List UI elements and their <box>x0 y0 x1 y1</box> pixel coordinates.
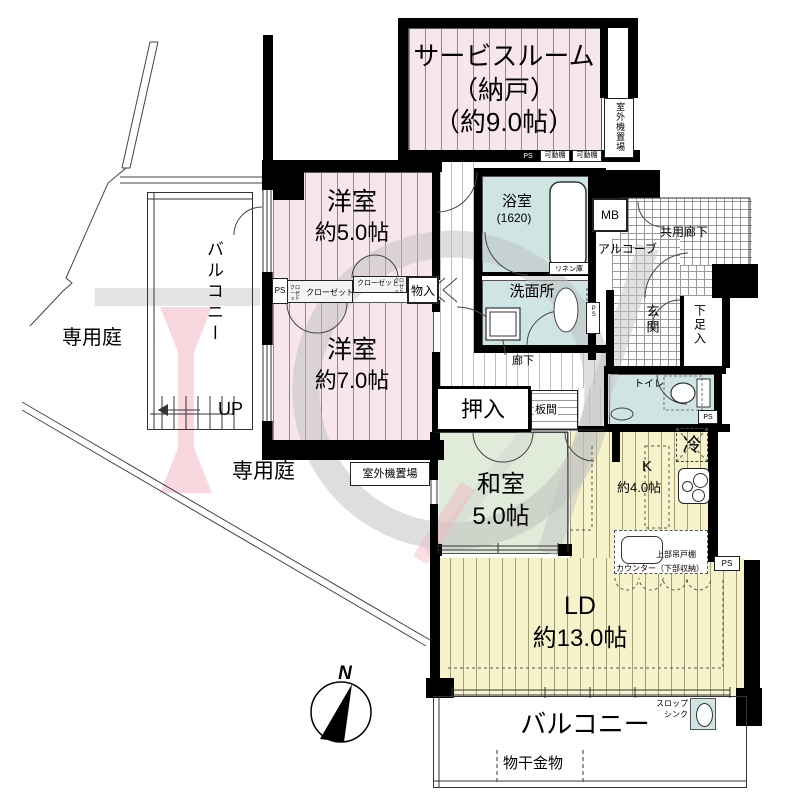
storage-box: 物入 <box>407 276 439 304</box>
pipe-space-box-west: PS <box>272 278 288 304</box>
western-room-5-name: 洋室 <box>292 188 412 216</box>
pipe-space-label: PS <box>699 414 717 422</box>
western-room-7-name: 洋室 <box>292 336 412 364</box>
alcove-entrance-floor <box>612 238 680 368</box>
linen-cabinet-box: リネン庫 <box>549 262 589 275</box>
movable-shelf-box-1: 可動棚 <box>540 150 570 162</box>
western-room-7-size: 約7.0帖 <box>287 369 417 394</box>
refrigerator-box: 冷 <box>676 428 708 462</box>
alcove-name: アルコーブ <box>598 243 657 256</box>
futon-closet-label: 押入 <box>438 398 528 423</box>
shoe-cabinet-name: 下足入 <box>692 304 705 346</box>
wall-segment <box>430 552 440 688</box>
pipe-space-label: PS <box>715 560 739 569</box>
board-floor-box: 板間 <box>531 390 578 430</box>
service-room-alt: （納戸） <box>399 76 609 105</box>
wall-segment <box>628 18 638 98</box>
pipe-space-box-bath: PS <box>586 302 600 334</box>
outdoor-unit-top-label: 室外機置場 <box>615 102 625 152</box>
wall-segment <box>558 544 572 556</box>
laundry-fitting-label: 物干金物 <box>503 756 563 773</box>
movable-shelf-label: 可動棚 <box>573 152 601 160</box>
wall-segment <box>262 163 272 445</box>
stove-icon <box>678 468 710 504</box>
private-garden-upper-label: 専用庭 <box>62 327 122 349</box>
closet-label: クローゼット <box>306 289 354 298</box>
bathroom-size: (1620) <box>479 212 549 225</box>
meter-box-label: MB <box>594 209 626 222</box>
service-room-name: サービスルーム <box>399 42 609 71</box>
corridor-name: 廊下 <box>512 355 534 367</box>
stove-burner-icon <box>693 473 708 488</box>
private-garden-lower-label: 専用庭 <box>232 460 295 484</box>
pipe-space-label: PS <box>273 287 287 296</box>
stove-burner-icon <box>682 481 693 492</box>
wall-segment <box>262 440 444 460</box>
wall-segment <box>474 168 482 352</box>
wall-segment <box>604 366 726 374</box>
japanese-room-name: 和室 <box>436 472 566 499</box>
wall-segment <box>474 345 614 353</box>
closet-box-2: クローゼット クローゼット <box>353 276 407 293</box>
compass-icon <box>311 682 371 742</box>
washroom-name: 洗面所 <box>482 284 582 301</box>
closet-label: クローゼット <box>357 280 399 288</box>
outdoor-unit-bottom-label: 室外機置場 <box>351 468 429 480</box>
wall-segment <box>606 290 614 370</box>
wall-segment <box>590 170 660 198</box>
linen-cabinet-label: リネン庫 <box>550 266 588 274</box>
living-dining-name: LD <box>480 592 680 620</box>
stairs-up-label: UP <box>218 399 243 419</box>
kitchen-name: K <box>642 459 652 476</box>
living-dining-size: 約13.0帖 <box>470 626 690 653</box>
wall-segment <box>263 35 273 163</box>
wall-segment <box>736 688 762 726</box>
movable-shelf-label: 可動棚 <box>541 152 569 160</box>
stove-burner-icon <box>692 489 705 502</box>
board-floor-label: 板間 <box>534 404 558 416</box>
closet-small-label: クローゼット <box>394 279 406 296</box>
meter-box: MB <box>592 198 628 232</box>
pipe-space-label: PS <box>519 153 537 161</box>
pipe-space-box-kitchen: PS <box>714 556 740 571</box>
wall-segment <box>474 168 606 176</box>
movable-shelf-box-2: 可動棚 <box>572 150 602 162</box>
compass-north-label: N <box>330 663 360 684</box>
wall-segment <box>430 544 442 556</box>
storage-label: 物入 <box>409 285 437 298</box>
refrigerator-label: 冷 <box>677 435 707 456</box>
closet-small-label: クローゼット <box>290 286 304 303</box>
western-room-5-size: 約5.0帖 <box>287 221 417 246</box>
wall-segment <box>612 428 620 462</box>
stairs-arrow <box>158 404 168 416</box>
wall-segment <box>722 296 730 368</box>
balcony-side-label: バルコニー <box>204 240 223 345</box>
service-room-size: （約9.0帖） <box>399 108 609 137</box>
slop-sink-label-2: シンク <box>652 711 688 720</box>
wall-segment <box>604 374 608 428</box>
slop-sink-label-1: スロップ <box>652 700 688 709</box>
japanese-room-size: 5.0帖 <box>436 504 566 531</box>
wall-segment <box>432 172 440 280</box>
kitchen-size: 約4.0帖 <box>617 481 661 496</box>
outdoor-unit-box-bottom: 室外機置場 <box>350 462 430 486</box>
entrance-floor-east <box>680 266 712 296</box>
common-corridor-name: 共用廊下 <box>660 226 708 239</box>
wall-segment <box>744 560 760 690</box>
bathroom-name: 浴室 <box>482 194 552 211</box>
upper-cupboard-label: 上部吊戸棚 <box>656 551 696 560</box>
futon-closet-box: 押入 <box>435 386 531 432</box>
wall-segment <box>712 264 758 298</box>
bathroom-floor <box>482 176 590 276</box>
wall-segment <box>426 678 454 698</box>
corridor-floor-vertical <box>440 162 478 354</box>
pipe-space-box-toilet: PS <box>698 410 718 424</box>
pipe-space-label: PS <box>590 306 597 318</box>
counter-label: カウンター（下部収納） <box>616 565 704 574</box>
closet-box-1: クローゼット クローゼット <box>287 280 353 303</box>
wall-segment <box>272 160 442 172</box>
floor-plan: 室外機置場 PS 可動棚 可動棚 MB PS クローゼット クローゼット クロー… <box>0 0 800 800</box>
wall-segment <box>680 296 684 366</box>
toilet-name: トイレ <box>634 379 664 390</box>
wall-segment <box>578 426 606 432</box>
entrance-name: 玄関 <box>644 304 659 336</box>
pipe-space-box-service: PS <box>518 150 538 162</box>
